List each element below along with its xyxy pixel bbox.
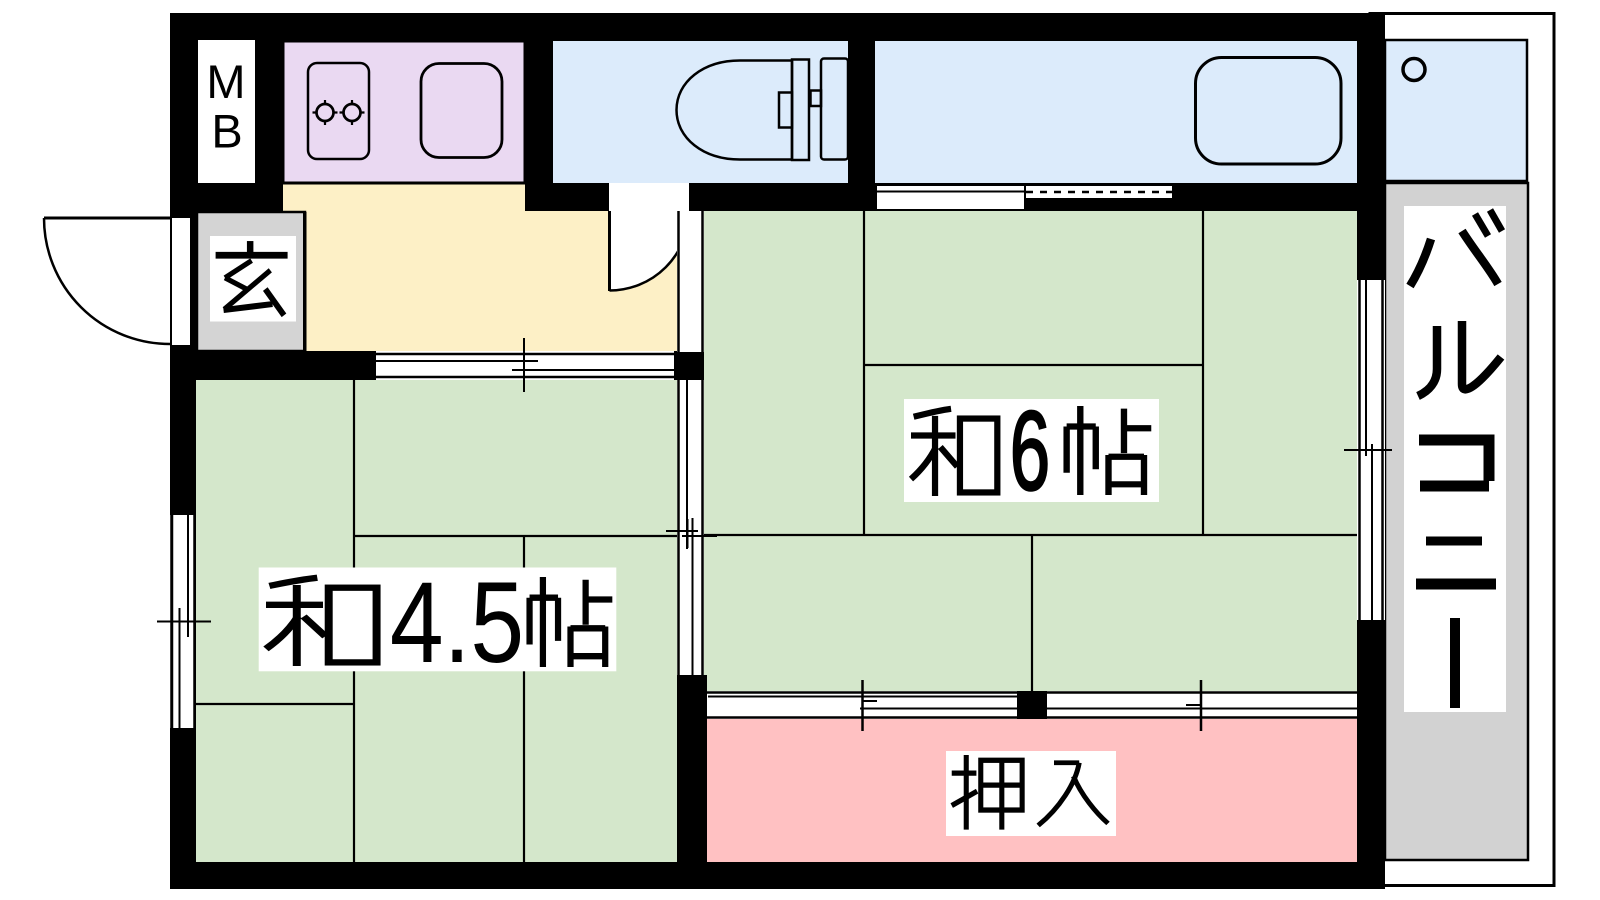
svg-text:6: 6 xyxy=(1010,388,1050,513)
svg-text:M: M xyxy=(206,55,245,108)
svg-text:4.5: 4.5 xyxy=(390,558,524,687)
svg-text:B: B xyxy=(211,105,242,158)
